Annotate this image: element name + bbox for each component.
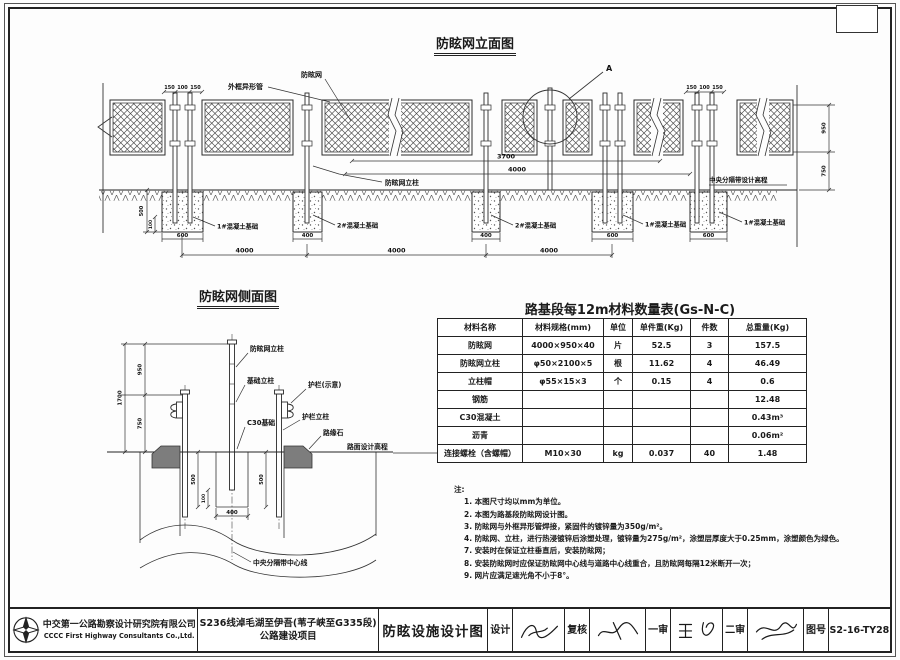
materials-table-title: 路基段每12m材料数量表(Gs-N-C)	[445, 299, 815, 318]
foundation-1-label: 1#混凝土基础	[217, 222, 258, 231]
drawing-title: 防眩设施设计图	[379, 609, 488, 651]
dim-text: 100	[201, 494, 207, 503]
leader-line	[291, 389, 306, 403]
curb-right	[284, 446, 312, 468]
dim-foundation-widths	[162, 233, 727, 242]
note-item: 2. 本图为路基段防眩网设计图。	[460, 509, 882, 521]
side-net-post-label: 防眩网立柱	[250, 344, 284, 353]
dim-text: 500	[191, 474, 197, 485]
table-cell	[523, 427, 604, 445]
table-cell: M10×30	[523, 445, 604, 463]
table-cell	[523, 391, 604, 409]
dim-text: 500	[259, 474, 265, 485]
table-cell: φ50×2100×5	[523, 355, 604, 373]
median-centerline-label: 中央分隔带中心线	[253, 558, 308, 567]
table-cell: 4	[691, 355, 729, 373]
table-cell: 0.15	[633, 373, 691, 391]
design-signature	[513, 609, 565, 651]
note-item: 9. 网片应满足遮光角不小于8°。	[460, 570, 882, 582]
second-audit-label: 二审	[723, 609, 748, 651]
table-cell: 沥青	[438, 427, 523, 445]
table-cell: C30混凝土	[438, 409, 523, 427]
note-item: 4. 防眩网、立柱，进行热浸镀锌后涂塑处理，镀锌量为275g/m²，涂塑层厚度大…	[460, 533, 882, 545]
table-cell: 0.06m²	[729, 427, 807, 445]
first-audit-signature	[671, 609, 723, 651]
side-view-title: 防眩网侧面图	[168, 286, 308, 305]
table-cell	[691, 427, 729, 445]
table-cell	[691, 391, 729, 409]
net-label: 防眩网	[301, 70, 322, 79]
elevation-view-drawing: A 150 100 150 150 100 150 外框异形管 防眩网 3700…	[85, 55, 875, 270]
table-row: 立柱帽φ55×15×3个0.1540.6	[438, 373, 807, 391]
leader-line	[309, 436, 321, 449]
project-line2: 公路建设项目	[260, 630, 317, 643]
dim-text: 750	[138, 418, 144, 430]
dim-text: 400	[480, 233, 492, 239]
table-cell: 4000×950×40	[523, 337, 604, 355]
outer-frame-label: 外框异形管	[228, 82, 263, 91]
table-cell: 157.5	[729, 337, 807, 355]
dim-text: 4000	[508, 166, 527, 174]
dim-text: 100	[699, 85, 710, 91]
cccc-logo-icon	[12, 616, 40, 644]
review-label: 复核	[565, 609, 590, 651]
table-row: 钢筋12.48	[438, 391, 807, 409]
table-header-cell: 件数	[691, 319, 729, 337]
table-cell: 连接螺栓（含螺帽）	[438, 445, 523, 463]
table-cell: 4	[691, 373, 729, 391]
company-name-en: CCCC First Highway Consultants Co.,Ltd.	[44, 632, 195, 640]
leader-line	[233, 552, 251, 562]
company-name-cn: 中交第一公路勘察设计研究院有限公司	[43, 620, 196, 631]
table-row: 防眩网立柱φ50×2100×5根11.62446.49	[438, 355, 807, 373]
dim-text: 400	[302, 233, 314, 239]
median-elevation-label: 中央分隔带设计高程	[709, 175, 768, 184]
materials-table: 材料名称材料规格(mm)单位单件重(Kg)件数总重量(Kg) 防眩网4000×9…	[437, 318, 807, 463]
table-header-cell: 材料名称	[438, 319, 523, 337]
table-row: 防眩网4000×950×40片52.53157.5	[438, 337, 807, 355]
materials-table-body: 防眩网4000×950×40片52.53157.5防眩网立柱φ50×2100×5…	[438, 337, 807, 463]
table-cell	[633, 427, 691, 445]
first-audit-label: 一审	[646, 609, 671, 651]
table-cell	[604, 391, 633, 409]
second-audit-signature	[748, 609, 804, 651]
dim-text: 4000	[235, 247, 254, 255]
c30-foundation-label: C30基础	[247, 418, 275, 427]
guardrail-post-label: 护栏立柱	[302, 412, 329, 421]
notes-block: 注: 1. 本图尺寸均以mm为单位。2. 本图为路基段防眩网设计图。3. 防眩网…	[460, 484, 882, 582]
table-cell	[633, 391, 691, 409]
design-label: 设计	[488, 609, 513, 651]
table-header-cell: 单件重(Kg)	[633, 319, 691, 337]
dim-text: 600	[177, 233, 189, 239]
table-cell: 0.037	[633, 445, 691, 463]
table-cell: 防眩网	[438, 337, 523, 355]
leader-line	[283, 420, 300, 430]
pavement-elevation-label: 路面设计高程	[347, 442, 388, 451]
dim-text: 500	[139, 205, 145, 216]
leader-line	[236, 385, 245, 402]
title-block: 中交第一公路勘察设计研究院有限公司 CCCC First Highway Con…	[10, 607, 890, 651]
table-cell: kg	[604, 445, 633, 463]
foundation-1-label: 1#混凝土基础	[645, 220, 686, 229]
dim-text: 100	[177, 85, 188, 91]
table-cell: 3	[691, 337, 729, 355]
side-net-post	[228, 340, 237, 490]
project-line1: S236线淖毛湖至伊吾(苇子峡至G335段)	[200, 617, 377, 630]
note-item: 1. 本图尺寸均以mm为单位。	[460, 496, 882, 508]
company-cell: 中交第一公路勘察设计研究院有限公司 CCCC First Highway Con…	[10, 609, 198, 651]
table-row: 沥青0.06m²	[438, 427, 807, 445]
corner-revision-box	[836, 5, 878, 33]
dim-text: 1700	[118, 390, 124, 405]
table-cell: 钢筋	[438, 391, 523, 409]
dim-side-heights	[121, 342, 229, 454]
notes-list: 1. 本图尺寸均以mm为单位。2. 本图为路基段防眩网设计图。3. 防眩网与外框…	[460, 496, 882, 582]
table-row: C30混凝土0.43m³	[438, 409, 807, 427]
net-post-label: 防眩网立柱	[385, 178, 419, 187]
table-cell: 根	[604, 355, 633, 373]
elevation-view-title: 防眩网立面图	[395, 33, 555, 52]
dim-text: 4000	[387, 247, 406, 255]
dim-text: 600	[703, 233, 715, 239]
dim-text: 950	[138, 364, 144, 376]
dim-text: 400	[226, 510, 238, 516]
table-cell: 40	[691, 445, 729, 463]
review-signature	[590, 609, 646, 651]
dim-text: 750	[822, 165, 828, 177]
table-header-cell: 单位	[604, 319, 633, 337]
table-cell: 片	[604, 337, 633, 355]
foundation-2-label: 2#混凝土基础	[515, 221, 556, 230]
dim-text: 100	[148, 220, 154, 229]
table-cell: φ55×15×3	[523, 373, 604, 391]
table-cell: 0.6	[729, 373, 807, 391]
table-cell: 立柱帽	[438, 373, 523, 391]
dim-text: 150	[712, 85, 723, 91]
note-item: 3. 防眩网与外框异形管焊接，紧固件的镀锌量为350g/m²。	[460, 521, 882, 533]
project-cell: S236线淖毛湖至伊吾(苇子峡至G335段) 公路建设项目	[198, 609, 379, 651]
note-item: 8. 安装防眩网时应保证防眩网中心线与道路中心线重合，且防眩网每隔12米断开一次…	[460, 558, 882, 570]
table-row: 连接螺栓（含螺帽）M10×30kg0.037401.48	[438, 445, 807, 463]
table-cell: 12.48	[729, 391, 807, 409]
table-cell: 0.43m³	[729, 409, 807, 427]
dim-text: 600	[607, 233, 619, 239]
net-panels	[110, 100, 793, 155]
leader-line	[237, 427, 245, 449]
table-header-row: 材料名称材料规格(mm)单位单件重(Kg)件数总重量(Kg)	[438, 319, 807, 337]
table-cell	[633, 409, 691, 427]
foundation-post-label: 基础立柱	[246, 376, 274, 385]
table-cell: 11.62	[633, 355, 691, 373]
dim-text: 3700	[497, 153, 516, 161]
foundation-1-label: 1#混凝土基础	[744, 218, 785, 227]
drawing-no-value: S2-16-TY28	[829, 609, 890, 651]
dim-right-heights	[793, 103, 835, 192]
leader-line	[236, 353, 248, 367]
drawing-no-label: 图号	[804, 609, 829, 651]
foundation-2-label: 2#混凝土基础	[337, 221, 378, 230]
dim-text: 150	[190, 85, 201, 91]
dim-text: 150	[164, 85, 175, 91]
table-cell: 防眩网立柱	[438, 355, 523, 373]
dim-text: 150	[686, 85, 697, 91]
curb-left	[152, 446, 180, 468]
table-cell: 46.49	[729, 355, 807, 373]
table-cell: 个	[604, 373, 633, 391]
dim-text: 950	[822, 122, 828, 134]
note-item: 7. 安装时在保证立柱垂直后，安装防眩网；	[460, 545, 882, 557]
table-header-cell: 材料规格(mm)	[523, 319, 604, 337]
table-cell	[604, 427, 633, 445]
detail-a-label: A	[606, 64, 613, 73]
notes-title: 注:	[460, 484, 882, 496]
table-cell	[604, 409, 633, 427]
table-cell	[523, 409, 604, 427]
side-view-drawing: 1700 950 750	[95, 322, 475, 602]
table-cell	[691, 409, 729, 427]
table-cell: 52.5	[633, 337, 691, 355]
guardrail-label: 护栏(示意)	[308, 380, 341, 389]
dim-text: 4000	[540, 247, 559, 255]
table-cell: 1.48	[729, 445, 807, 463]
curb-label: 路缘石	[323, 428, 344, 437]
table-header-cell: 总重量(Kg)	[729, 319, 807, 337]
